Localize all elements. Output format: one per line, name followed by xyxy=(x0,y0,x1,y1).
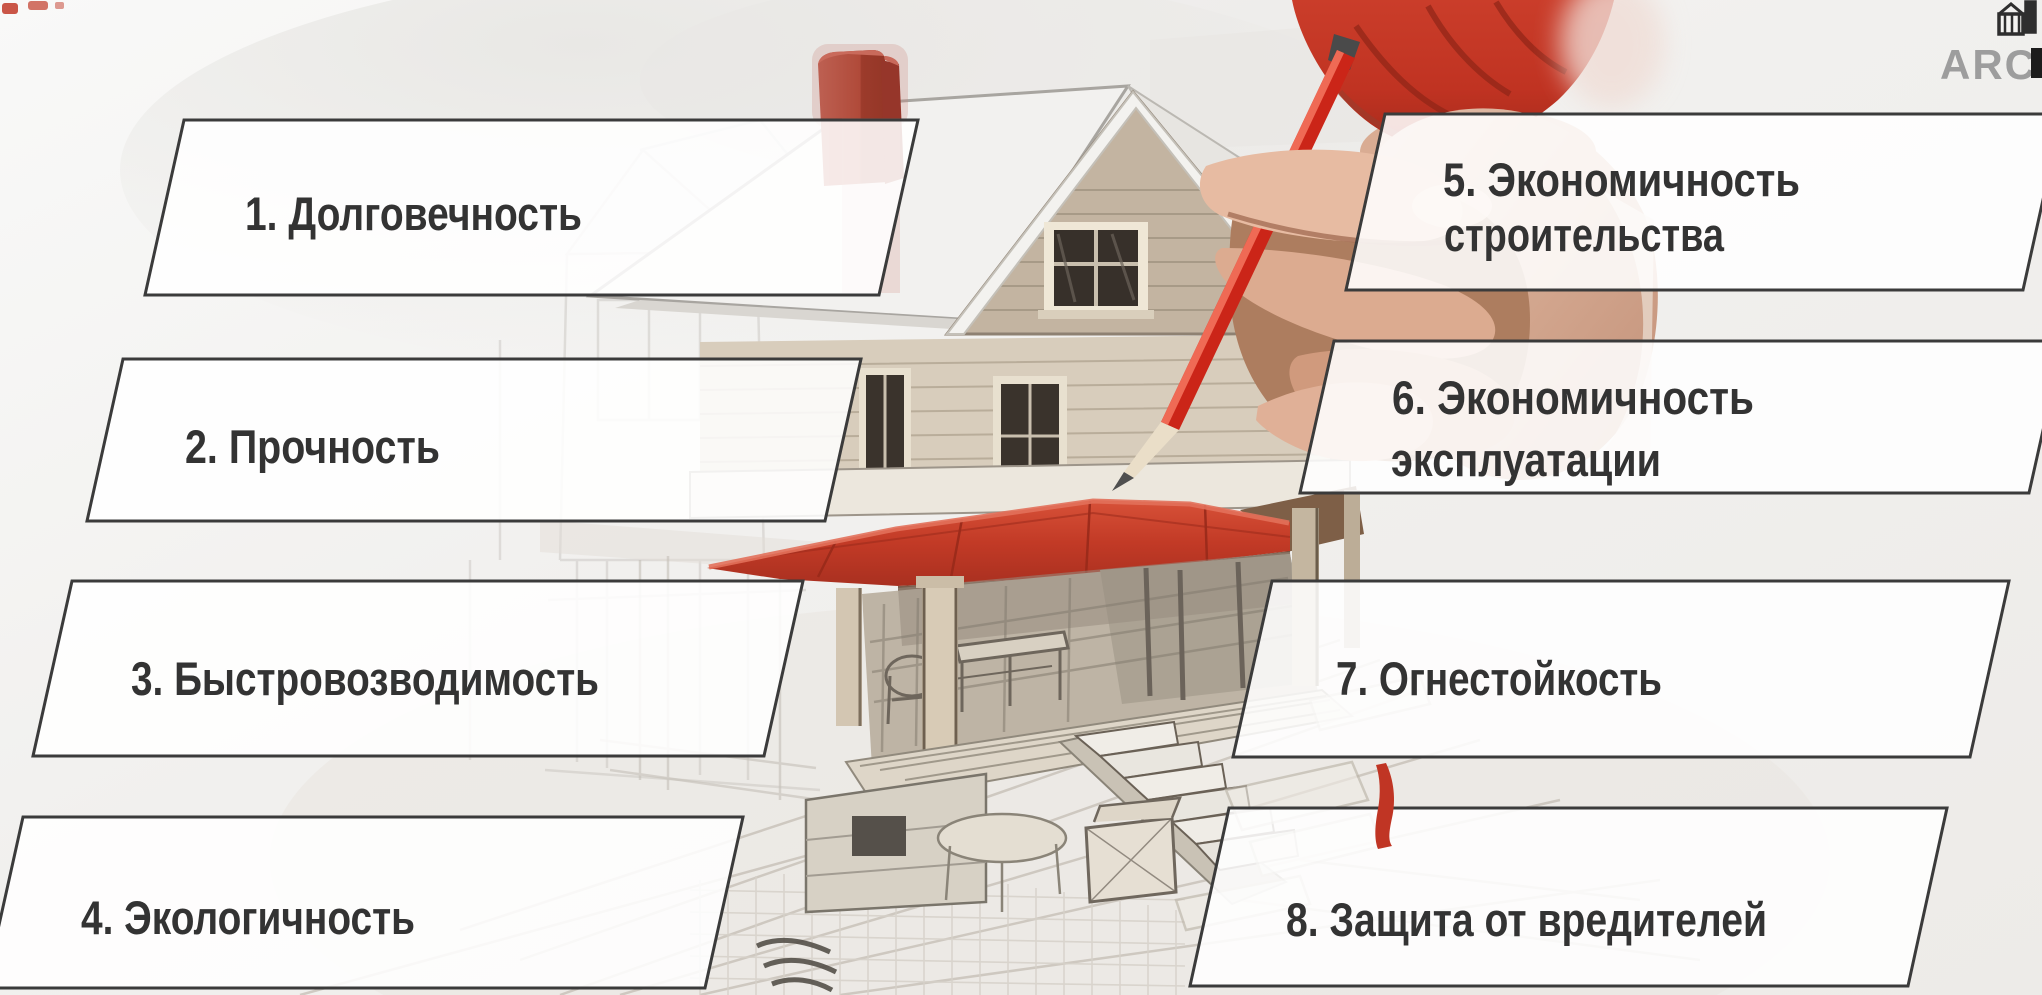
svg-text:8. Защита от вредителей: 8. Защита от вредителей xyxy=(1286,893,1767,946)
svg-text:эксплуатации: эксплуатации xyxy=(1391,433,1661,486)
svg-text:строительства: строительства xyxy=(1444,208,1725,261)
svg-text:5. Экономичность: 5. Экономичность xyxy=(1443,153,1800,206)
svg-text:3. Быстровозводимость: 3. Быстровозводимость xyxy=(131,652,599,705)
svg-text:7. Огнестойкость: 7. Огнестойкость xyxy=(1336,652,1662,705)
svg-text:6. Экономичность: 6. Экономичность xyxy=(1392,371,1754,424)
svg-text:4. Экологичность: 4. Экологичность xyxy=(81,891,415,944)
svg-text:1. Долговечность: 1. Долговечность xyxy=(245,187,582,240)
svg-text:ARC: ARC xyxy=(1940,41,2037,88)
svg-text:2. Прочность: 2. Прочность xyxy=(185,420,440,473)
